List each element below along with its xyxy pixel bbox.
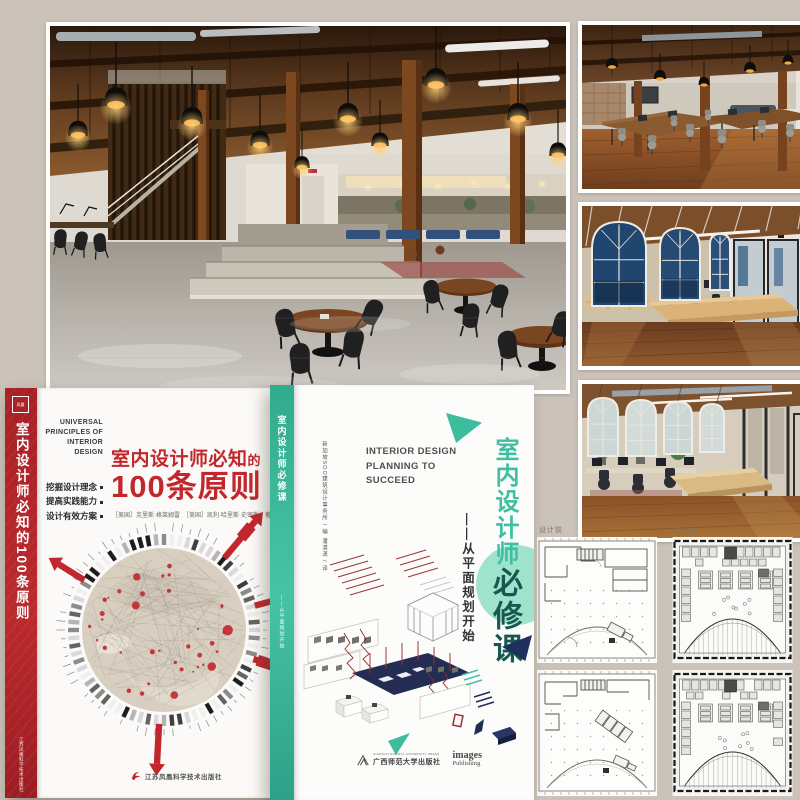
main-interior-photo [46,22,570,394]
book2-spine-subtitle: ——从平面规划开始 [279,595,286,649]
floorplan-after-1-drawing [672,537,793,663]
floorplan-before-2 [537,670,657,796]
book2-front-cover: 新加坡SOO建筑设计事务所 / 编 潘潇潇 / 译 INTERIOR DESIG… [294,385,534,800]
book-100-principles: 凤凰 室内设计师必知的100条原则 江苏凤凰科学技术出版社 UNIVERSAL … [5,388,315,798]
floorplan-before-1 [537,537,657,663]
cover-accent-icons [444,669,530,755]
book2-title: 室内设计师必修课 [489,437,521,666]
images-publishing-logo: images Publishing [453,751,482,767]
side-photo-coworking [578,21,800,193]
book2-spine-title: 室内设计师必修课 [276,415,289,503]
floorplan-after-1 [672,537,793,663]
book2-publisher-row: GUANGXI NORMAL UNIVERSITY PRESS 广西师范大学出版… [324,751,514,767]
night-office-illustration [582,206,800,366]
book2-editor-credit: 新加坡SOO建筑设计事务所 / 编 [321,441,327,535]
loft-lounge-illustration [50,26,566,390]
book1-spine: 凤凰 室内设计师必知的100条原则 江苏凤凰科学技术出版社 [5,388,37,798]
side-photo-arched-windows-night [578,202,800,370]
book1-spine-title: 室内设计师必知的100条原则 [14,422,28,621]
book1-tagline: 挖掘设计理念 [37,480,103,494]
book-required-course: 室内设计师必修课 ——从平面规划开始 新加坡SOO建筑设计事务所 / 编 潘潇潇… [270,385,534,800]
floorplan-label-before: 设计前 [539,525,563,535]
book-product-collage: 设计前 设计后 [0,0,800,800]
floorplan-before-1-drawing [537,537,657,663]
publisher-logo-icon: 凤凰 [12,396,29,413]
floorplan-before-2-drawing [537,670,657,796]
book2-english-title: INTERIOR DESIGN PLANNING TO SUCCEED [366,445,456,489]
daylight-office-illustration [582,384,800,538]
mountain-logo-icon [356,753,370,767]
book2-spine: 室内设计师必修课 ——从平面规划开始 [270,385,294,800]
book1-spine-publisher: 江苏凤凰科学技术出版社 [19,737,24,792]
book2-publisher-cn: 广西师范大学出版社 [373,757,441,767]
book1-title: 室内设计师必知的 100条原则 [111,444,262,502]
book1-english-title: UNIVERSAL PRINCIPLES OF INTERIOR DESIGN [45,418,103,459]
teal-triangle-icon [446,413,482,443]
floorplan-after-2-drawing [672,670,793,796]
phoenix-logo-icon [130,770,141,782]
side-photo-daylight-office [578,380,800,542]
gxnu-press-logo: GUANGXI NORMAL UNIVERSITY PRESS 广西师范大学出版… [356,752,441,767]
coworking-illustration [582,25,800,189]
floorplan-after-2 [672,670,793,796]
book1-publisher: 江苏凤凰科学技术出版社 [145,771,222,781]
floorplan-label-after: 设计后 [674,525,698,535]
